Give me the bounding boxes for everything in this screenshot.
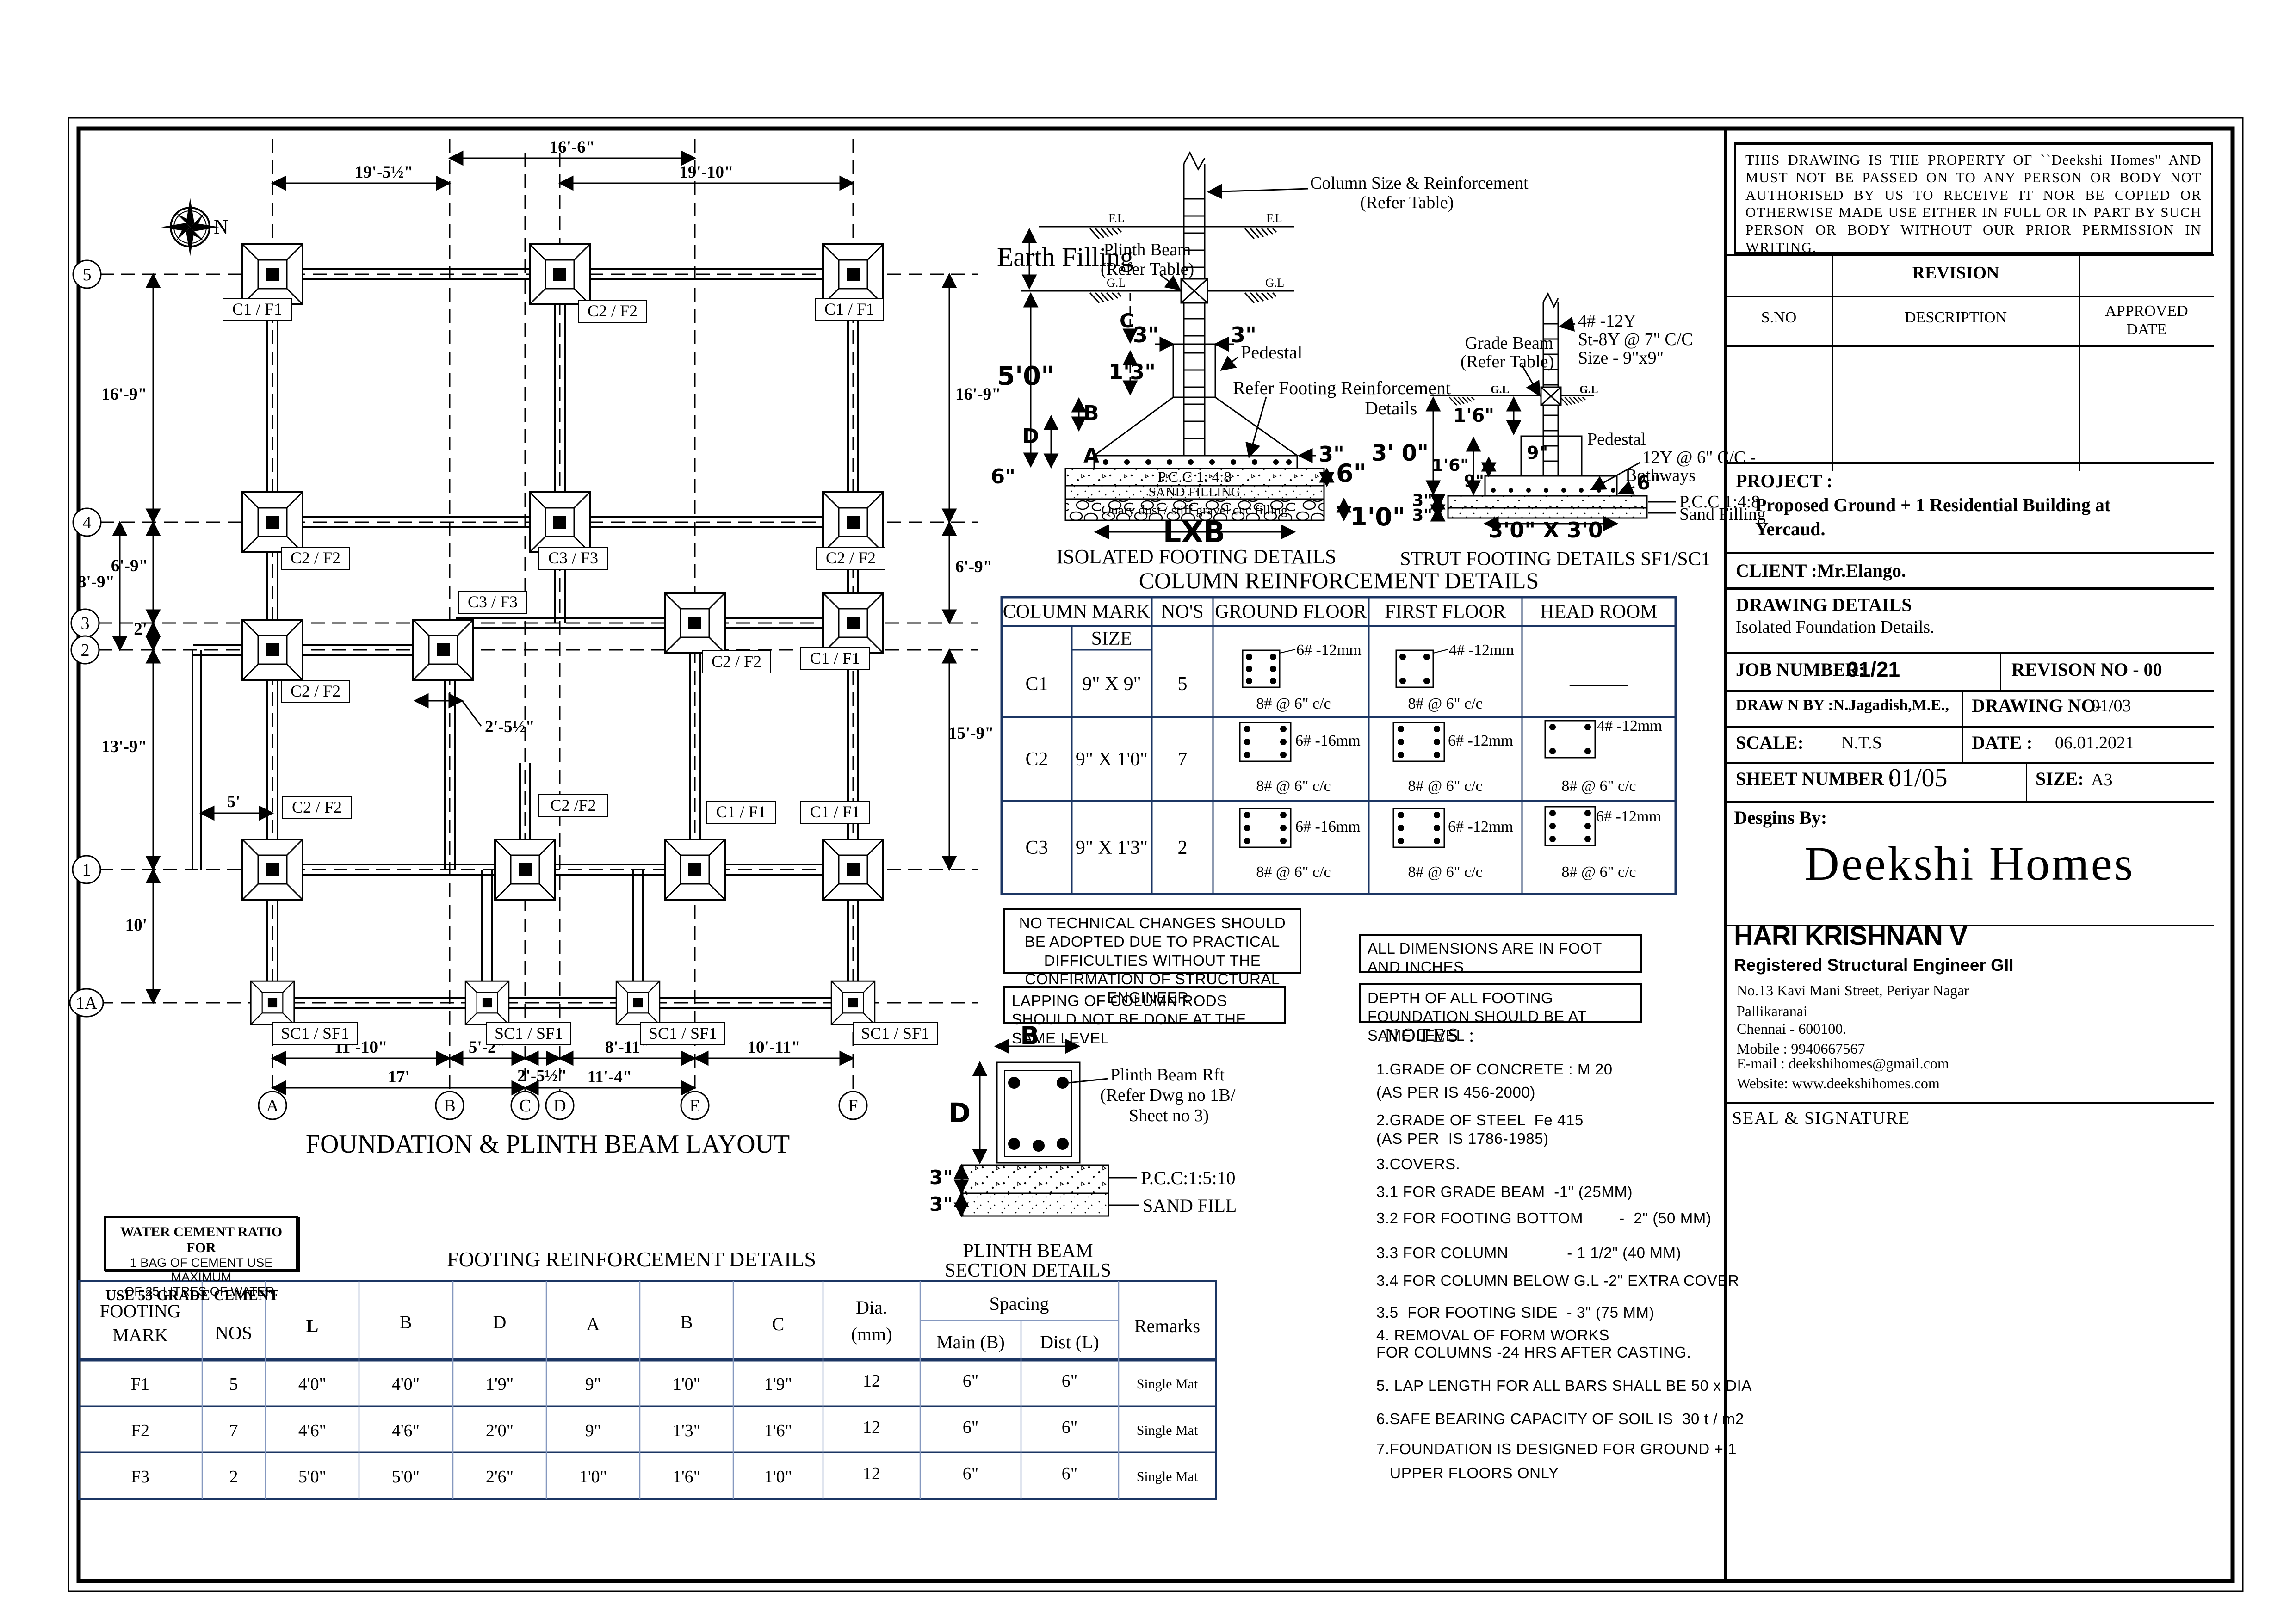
sand-label: SAND FILLING <box>1149 485 1241 500</box>
table-row-f2: F274'6"4'6"2'0"9"1'3"1'6"126"6"Single Ma… <box>131 1418 1198 1440</box>
footing-tag: C1 / F1 <box>824 300 874 318</box>
cell: 2'0" <box>486 1421 514 1440</box>
ft-h-a: A <box>587 1314 600 1334</box>
cell: 2'6" <box>486 1467 514 1487</box>
plinth-rft-2: (Refer Dwg no 1B/ <box>1100 1086 1236 1105</box>
c3-ff-bars: 6# -12mm <box>1448 818 1513 835</box>
cell: 1'0" <box>673 1375 700 1394</box>
footing-tag: C2 / F2 <box>712 652 761 671</box>
cell: 4'0" <box>392 1375 420 1394</box>
date-value: 06.01.2021 <box>2055 733 2134 753</box>
cell: 1'6" <box>764 1421 792 1440</box>
dim-top-1: 16'-6" <box>550 138 595 157</box>
note-item: 3.5 FOR FOOTING SIDE - 3" (75 MM) <box>1376 1304 1654 1321</box>
note-item: 7.FOUNDATION IS DESIGNED FOR GROUND + 1 <box>1376 1440 1737 1458</box>
cell: 1'6" <box>673 1467 700 1487</box>
footing-tag: C2 / F2 <box>291 549 340 567</box>
strut-footing-section: Grade Beam (Refer Table) 4# -12Y St-8Y @… <box>1372 294 1766 570</box>
dim-9-b: 9" <box>1464 472 1484 491</box>
fl-label: F.L <box>1266 211 1282 225</box>
notes-heading: NOTES : <box>1385 1024 1477 1047</box>
dim-6-right: 6" <box>1336 459 1367 488</box>
job-number-label: JOB NUMBER: <box>1736 659 1865 680</box>
gl-label: G.L <box>1491 384 1510 396</box>
c1-ff-ties: 8# @ 6" c/c <box>1408 695 1482 712</box>
grid-row-4: 4 <box>83 513 92 532</box>
cell: 12 <box>863 1418 880 1437</box>
dim-3-pcc: 3" <box>929 1166 953 1189</box>
cell: 6" <box>1062 1464 1078 1483</box>
footing-tag: C1 / F1 <box>810 649 860 667</box>
grid-row-2: 2 <box>81 641 90 660</box>
dim-bot-7: 11'-4" <box>588 1068 632 1086</box>
plinth-title-2: SECTION DETAILS <box>945 1260 1111 1281</box>
pcc-label: P.C.C 1: 4:8 <box>1157 469 1232 486</box>
drawing-details-value: Isolated Foundation Details. <box>1736 617 1935 637</box>
note-item: FOR COLUMNS -24 HRS AFTER CASTING. <box>1376 1344 1691 1361</box>
c3-mark: C3 <box>1025 837 1048 858</box>
client: CLIENT :Mr.Elango. <box>1736 560 1906 581</box>
north-compass-icon: N <box>161 198 229 256</box>
footing-tag: SC1 / SF1 <box>649 1024 717 1043</box>
cell: 5 <box>229 1375 238 1394</box>
cell: 6" <box>1062 1418 1078 1437</box>
dim-1-3: 1'3" <box>1108 359 1156 384</box>
cell: 6" <box>963 1464 979 1483</box>
cell: 6" <box>1062 1371 1078 1391</box>
cell: Single Mat <box>1137 1469 1198 1484</box>
cell: F2 <box>131 1421 149 1440</box>
footing-tag: C2 / F2 <box>826 549 876 567</box>
designs-by-label: Desgins By: <box>1734 807 1827 828</box>
c3-gf-ties: 8# @ 6" c/c <box>1256 864 1331 881</box>
ft-h-mark: MARK <box>112 1325 168 1345</box>
strut-rebar-1: 4# -12Y <box>1578 311 1636 331</box>
c3-nos: 2 <box>1178 837 1188 858</box>
north-label: N <box>214 216 229 238</box>
address-line: Website: www.deekshihomes.com <box>1737 1075 1940 1092</box>
note-lapping: LAPPING OF COLUMN RODS SHOULD NOT BE DON… <box>1003 986 1286 1024</box>
dim-bot-6: 17' <box>388 1068 409 1086</box>
cell: 4'0" <box>298 1375 326 1394</box>
project-label: PROJECT : <box>1736 470 1832 492</box>
note-item: 3.4 FOR COLUMN BELOW G.L -2" EXTRA COVER <box>1376 1272 1739 1290</box>
gl-label: G.L <box>1265 276 1284 290</box>
note-item: 3.2 FOR FOOTING BOTTOM - 2" (50 MM) <box>1376 1210 1711 1227</box>
grid-row-1a: 1A <box>76 994 98 1013</box>
c1-mark: C1 <box>1025 673 1048 695</box>
dim-left-2: 6'-9" <box>111 556 148 575</box>
c2-gf-ties: 8# @ 6" c/c <box>1256 778 1331 795</box>
gl-label: G.L <box>1579 384 1598 396</box>
dim-3-0: 3' 0" <box>1372 440 1429 466</box>
pcc-label: P.C.C:1:5:10 <box>1141 1167 1236 1188</box>
c3-ff-ties: 8# @ 6" c/c <box>1408 864 1482 881</box>
footing-tags: C1 / F1 C2 / F2 C1 / F1 C2 / F2 C3 / F3 … <box>223 298 937 1045</box>
dim-left-3: 8'-9" <box>78 573 115 592</box>
ft-h-d: D <box>493 1312 507 1333</box>
gl-label: G.L <box>1107 276 1126 290</box>
footing-tag: C2 /F2 <box>550 796 596 815</box>
grid-col-d: D <box>553 1096 566 1116</box>
title-block: THIS DRAWING IS THE PROPERTY OF ``Deeksh… <box>1726 129 2214 1581</box>
note-item: UPPER FLOORS ONLY <box>1376 1464 1559 1482</box>
cell: 9" <box>585 1421 601 1440</box>
drawing-details-label: DRAWING DETAILS <box>1736 594 1912 616</box>
sand-label: SAND FILL <box>1143 1195 1237 1216</box>
dim-1-0: 1'0" <box>1350 502 1405 531</box>
note-depth: DEPTH OF ALL FOOTING FOUNDATION SHOULD B… <box>1359 983 1642 1023</box>
footing-symbols <box>242 244 883 1024</box>
scale-value: N.T.S <box>1841 733 1882 753</box>
grid-col-e: E <box>689 1096 700 1116</box>
dim-d: D <box>1022 425 1039 448</box>
c2-size: 9" X 1'0" <box>1076 749 1148 770</box>
ft-h-b: B <box>400 1312 412 1333</box>
footing-tag: SC1 / SF1 <box>281 1024 349 1043</box>
cell: 6" <box>963 1371 979 1391</box>
c1-ff-bars: 4# -12mm <box>1449 642 1514 659</box>
cell: 12 <box>863 1371 880 1391</box>
address-line: Chennai - 600100. <box>1737 1020 1846 1037</box>
cell: F1 <box>131 1375 149 1394</box>
plinth-beam-note-1: Plinth Beam <box>1104 240 1191 259</box>
cell: 7 <box>229 1421 238 1440</box>
footing-table-rows: F154'0"4'0"1'9"9"1'0"1'9"126"6"Single Ma… <box>131 1371 1198 1487</box>
disclaimer: THIS DRAWING IS THE PROPERTY OF ``Deeksh… <box>1734 142 2213 254</box>
dim-1-6-a: 1'6" <box>1453 405 1494 426</box>
cell: 6" <box>963 1418 979 1437</box>
use-53-grade-note: USE 53 GRADE CEMENT <box>105 1287 278 1304</box>
sheet-number-value: 01/05 <box>1888 763 1948 793</box>
drawing-sheet: { "plan": { "title": "FOUNDATION & PLINT… <box>0 0 2296 1623</box>
wcr-line-2: 1 BAG OF CEMENT USE MAXIMUM <box>106 1256 296 1284</box>
drawn-by: DRAW N BY :N.Jagadish,M.E., <box>1736 697 1949 714</box>
size-value: A3 <box>2091 770 2112 790</box>
grid-row-5: 5 <box>83 265 92 284</box>
dim-left-5: 13'-9" <box>101 737 147 756</box>
cell: 12 <box>863 1464 880 1483</box>
note-item: 3.1 FOR GRADE BEAM -1" (25MM) <box>1376 1183 1633 1201</box>
dim-c: C <box>1120 309 1134 332</box>
strut-footing-title: STRUT FOOTING DETAILS SF1/SC1 <box>1400 549 1710 570</box>
table-row-f1: F154'0"4'0"1'9"9"1'0"1'9"126"6"Single Ma… <box>131 1371 1198 1394</box>
ft-h-main: Main (B) <box>936 1332 1005 1352</box>
dim-6: 6" <box>1637 471 1660 494</box>
strut-rebar-3: Size - 9"x9" <box>1578 348 1664 368</box>
ft-h-dia-1: Dia. <box>856 1297 887 1318</box>
project-line-1: Proposed Ground + 1 Residential Building… <box>1755 494 2110 516</box>
refer-footing-2: Details <box>1365 398 1417 419</box>
grid-col-b: B <box>444 1096 455 1116</box>
ft-h-l: L <box>306 1315 319 1336</box>
dim-3-sand: 3" <box>1412 506 1432 525</box>
project-line-2: Yercaud. <box>1755 518 1825 540</box>
dim-offset: 2'-5½" <box>485 717 535 736</box>
grid-row-1: 1 <box>82 860 91 880</box>
note-item: 4. REMOVAL OF FORM WORKS <box>1376 1327 1609 1344</box>
note-all-dimensions: ALL DIMENSIONS ARE IN FOOT AND INCHES <box>1359 934 1642 973</box>
note-item: 3.3 FOR COLUMN - 1 1/2" (40 MM) <box>1376 1244 1681 1262</box>
cell: 4'6" <box>392 1421 420 1440</box>
c2-ff-ties: 8# @ 6" c/c <box>1408 778 1482 795</box>
c3-gf-bars: 6# -16mm <box>1295 818 1361 835</box>
grid-row-3: 3 <box>81 614 90 633</box>
dim-5ft: 5' <box>227 792 241 811</box>
footing-tag: C3 / F3 <box>468 592 518 611</box>
note-item: 6.SAFE BEARING CAPACITY OF SOIL IS 30 t … <box>1376 1410 1744 1428</box>
column-table-title: COLUMN REINFORCEMENT DETAILS <box>1139 568 1539 593</box>
seal-signature-label: SEAL & SIGNATURE <box>1732 1108 1910 1129</box>
c1-gf-bars: 6# -12mm <box>1296 642 1362 659</box>
dim-left-6: 10' <box>125 916 147 935</box>
plinth-title-1: PLINTH BEAM <box>963 1240 1093 1262</box>
cell: F3 <box>131 1467 149 1487</box>
footing-tag: SC1 / SF1 <box>861 1024 929 1043</box>
sheet-number-label: SHEET NUMBER : <box>1736 768 1895 790</box>
c2-hr-ties: 8# @ 6" c/c <box>1561 778 1636 795</box>
footing-tag: SC1 / SF1 <box>495 1024 563 1043</box>
footing-tag: C2 / F2 <box>292 798 342 816</box>
c3-hr-ties: 8# @ 6" c/c <box>1561 864 1636 881</box>
footing-tag: C1 / F1 <box>232 300 282 318</box>
c2-mark: C2 <box>1025 749 1048 770</box>
note-item: 1.GRADE OF CONCRETE : M 20 <box>1376 1061 1613 1078</box>
revison-no: REVISON NO - 00 <box>2011 659 2162 680</box>
wcr-line-1: WATER CEMENT RATIO FOR <box>106 1224 296 1256</box>
plan-title: FOUNDATION & PLINTH BEAM LAYOUT <box>306 1130 790 1159</box>
pedestal-label: Pedestal <box>1241 342 1302 363</box>
isolated-footing-title: ISOLATED FOOTING DETAILS <box>1056 545 1336 568</box>
cell: 9" <box>585 1375 601 1394</box>
c3-size: 9" X 1'3" <box>1076 837 1148 858</box>
footing-table-title: FOOTING REINFORCEMENT DETAILS <box>447 1247 816 1271</box>
engineer-name: HARI KRISHNAN V <box>1734 920 1967 951</box>
grid-col-f: F <box>848 1096 858 1116</box>
strut-rebar-2: St-8Y @ 7" C/C <box>1578 330 1693 349</box>
dim-a: A <box>1083 444 1099 468</box>
col-header-hr: HEAD ROOM <box>1540 601 1657 623</box>
dim-top-3: 19'-10" <box>679 163 733 182</box>
dim-d: D <box>948 1097 971 1129</box>
dim-6-left: 6" <box>990 465 1015 488</box>
ft-h-c: C <box>772 1314 785 1334</box>
cell: 5'0" <box>298 1467 326 1487</box>
c2-hr-bars: 4# -12mm <box>1597 717 1662 734</box>
table-row-f3: F325'0"5'0"2'6"1'0"1'6"1'0"126"6"Single … <box>131 1464 1198 1487</box>
c1-nos: 5 <box>1178 673 1188 695</box>
c1-gf-ties: 8# @ 6" c/c <box>1256 695 1331 712</box>
revision-description-header: DESCRIPTION <box>1832 309 2079 327</box>
footing-tag: C3 / F3 <box>548 549 598 567</box>
cell: Single Mat <box>1137 1423 1198 1438</box>
revision-approved-header-1: APPROVED <box>2079 302 2214 320</box>
ft-h-dist: Dist (L) <box>1040 1332 1099 1352</box>
dim-top-2: 19'-5½" <box>355 163 413 182</box>
cell: 2 <box>229 1467 238 1487</box>
fl-label: F.L <box>1108 211 1125 225</box>
plinth-beam-section: B D 3" 3" Plinth Beam Rft (Refer Dwg no … <box>929 1021 1237 1281</box>
dim-left-4: 2' <box>134 620 147 639</box>
revision-table: REVISION S.NO DESCRIPTION APPROVED DATE <box>1726 254 2214 471</box>
job-number-value: 01/21 <box>1847 657 1900 682</box>
col-header-ff: FIRST FLOOR <box>1385 601 1506 623</box>
column-size-note-1: Column Size & Reinforcement <box>1310 173 1529 193</box>
plinth-rft-3: Sheet no 3) <box>1129 1106 1209 1125</box>
footing-tag: C2 / F2 <box>588 302 637 320</box>
notes-list: NOTES : 1.GRADE OF CONCRETE : M 20 (AS P… <box>1376 1020 1760 1510</box>
column-size-note-2: (Refer Table) <box>1360 193 1454 212</box>
grade-beam-note-1: Grade Beam <box>1465 333 1553 353</box>
lxb-label: LXB <box>1163 515 1225 549</box>
footing-tag: C2 / F2 <box>291 682 340 700</box>
dim-right-3: 15'-9" <box>948 724 994 743</box>
cell: 1'0" <box>579 1467 607 1487</box>
col-header-size: SIZE <box>1091 628 1133 649</box>
water-cement-ratio-box: WATER CEMENT RATIO FOR 1 BAG OF CEMENT U… <box>104 1216 298 1271</box>
revision-title: REVISION <box>1832 263 2079 283</box>
revision-sno-header: S.NO <box>1726 309 1832 327</box>
col-header-mark: COLUMN MARK <box>1003 601 1151 623</box>
c3-hr-bars: 6# -12mm <box>1596 808 1661 825</box>
cell: Single Mat <box>1137 1376 1198 1392</box>
address-line: E-mail : deekshihomes@gmail.com <box>1737 1055 1949 1072</box>
revision-approved-header-2: DATE <box>2079 321 2214 339</box>
ft-h-spacing: Spacing <box>990 1293 1049 1314</box>
cell: 1'0" <box>764 1467 792 1487</box>
drawing-no-label: DRAWING NO- <box>1972 695 2102 716</box>
note-no-technical-changes: NO TECHNICAL CHANGES SHOULD BE ADOPTED D… <box>1003 908 1301 974</box>
col-header-gf: GROUND FLOOR <box>1215 601 1367 623</box>
c1-headroom-dash: ——— <box>1569 673 1628 695</box>
cell: 1'9" <box>486 1375 514 1394</box>
c1-size: 9" X 9" <box>1082 673 1141 695</box>
grid-col-a: A <box>266 1096 279 1116</box>
cell: 1'3" <box>673 1421 700 1440</box>
dim-left-1: 16'-9" <box>101 385 147 404</box>
col-header-nos: NO'S <box>1161 601 1204 623</box>
deekshi-homes-logo: Deekshi Homes <box>1726 836 2214 891</box>
note-item: 3.COVERS. <box>1376 1155 1460 1173</box>
dim-bot-5: 10'-11" <box>747 1038 800 1057</box>
c2-ff-bars: 6# -12mm <box>1448 732 1513 749</box>
note-item: 2.GRADE OF STEEL Fe 415 <box>1376 1111 1584 1129</box>
address-line: No.13 Kavi Mani Street, Periyar Nagar <box>1737 982 1969 999</box>
c2-gf-bars: 6# -16mm <box>1295 732 1361 749</box>
date-label: DATE : <box>1972 732 2032 753</box>
dim-1-6-b: 1'6" <box>1432 456 1469 475</box>
cell: 4'6" <box>298 1421 326 1440</box>
ft-h-remarks: Remarks <box>1134 1315 1200 1336</box>
scale-label: SCALE: <box>1736 732 1804 753</box>
dim-right-2: 6'-9" <box>955 557 992 576</box>
ft-h-dia-2: (mm) <box>851 1324 892 1345</box>
cell: 5'0" <box>392 1467 420 1487</box>
drawing-no-value: 01/03 <box>2091 696 2131 716</box>
size-label: SIZE: <box>2036 768 2084 790</box>
dim-right-1: 16'-9" <box>955 385 1001 404</box>
note-item: (AS PER IS 456-2000) <box>1376 1084 1535 1101</box>
cell: 1'9" <box>764 1375 792 1394</box>
refer-footing-1: Refer Footing Reinforcement <box>1233 377 1451 398</box>
pedestal-label: Pedestal <box>1587 430 1646 449</box>
grade-beam-note-2: (Refer Table) <box>1461 352 1554 371</box>
engineer-title: Registered Structural Engineer GII <box>1734 956 2013 975</box>
ft-h-nos: NOS <box>215 1322 252 1343</box>
footing-tag: C1 / F1 <box>810 802 860 821</box>
note-item: (AS PER IS 1786-1985) <box>1376 1130 1549 1148</box>
c2-nos: 7 <box>1178 749 1188 770</box>
column-reinforcement-table: COLUMN REINFORCEMENT DETAILS COLUMN MARK… <box>1002 568 1676 894</box>
dim-9-a: 9" <box>1527 443 1548 463</box>
ft-h-b2: B <box>681 1312 693 1333</box>
base-size-label: 3'0" X 3'0" <box>1488 518 1614 543</box>
grid-col-c: C <box>519 1096 531 1116</box>
address-line: Pallikaranai <box>1737 1003 1807 1020</box>
dim-3-left: 3" <box>1133 322 1159 347</box>
dim-5-0: 5'0" <box>997 361 1054 391</box>
footing-tag: C1 / F1 <box>716 802 766 821</box>
dim-b: B <box>1083 401 1099 425</box>
dim-bot-3: 2'-5½" <box>517 1067 567 1086</box>
dim-3-sand: 3" <box>929 1193 953 1216</box>
foundation-plan: 5 4 3 2 1 1A A B C D E F N <box>70 138 1001 1159</box>
note-item: 5. LAP LENGTH FOR ALL BARS SHALL BE 50 x… <box>1376 1377 1752 1395</box>
plinth-rft-1: Plinth Beam Rft <box>1110 1065 1225 1085</box>
